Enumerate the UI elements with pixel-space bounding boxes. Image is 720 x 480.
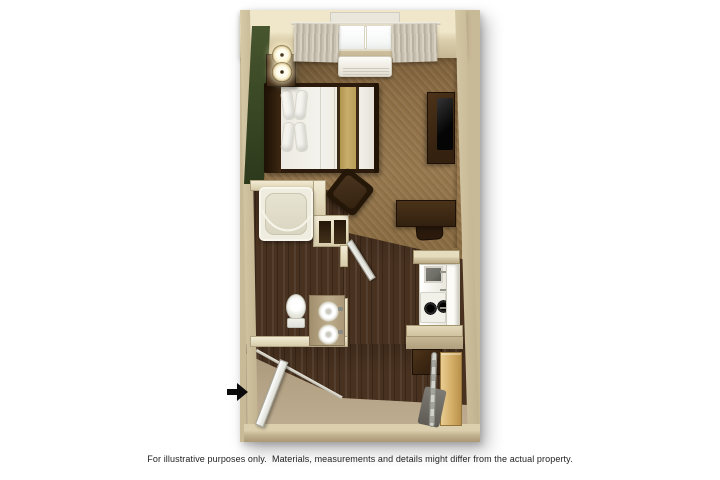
wall-bottom: [244, 424, 480, 442]
bed-runner: [340, 87, 356, 169]
bed-footboard: [374, 83, 379, 173]
faucet: [338, 307, 343, 311]
sink-basin: [318, 324, 339, 345]
desk: [396, 200, 456, 227]
bathroom-wall-divider: [313, 180, 326, 218]
television: [437, 98, 453, 150]
kitchen-counter-top: [413, 250, 460, 264]
curtain-left: [294, 23, 340, 62]
armchair-cushion: [332, 174, 368, 210]
toilet-tank: [287, 318, 305, 328]
base-cabinet: [412, 349, 442, 375]
sheet-crease: [320, 87, 321, 169]
entry-arrow-icon: [225, 380, 249, 404]
ac-unit: [338, 56, 392, 77]
fridge-handle: [440, 271, 446, 273]
ac-vents: [343, 68, 389, 75]
bed-sheet-end: [359, 87, 374, 169]
shower-curtain-rod: [259, 206, 313, 242]
closet-shelf-unit: [313, 215, 349, 247]
toilet-bowl: [286, 294, 306, 320]
table-lamp: [272, 62, 292, 82]
faucet: [338, 330, 343, 334]
closet-opening: [334, 220, 346, 244]
window-mullion: [364, 26, 367, 49]
kitchen-sink: [424, 266, 443, 283]
vanity-counter: [309, 295, 345, 346]
tv-dresser: [427, 92, 455, 164]
bed-headboard: [264, 83, 281, 173]
disclaimer-caption: For illustrative purposes only. Material…: [0, 454, 720, 465]
window-glass: [337, 24, 393, 51]
floor-plan-page: For illustrative purposes only. Material…: [0, 0, 720, 480]
kitchen-counter-lower-top: [406, 325, 463, 337]
bathroom-wall-right-upper: [340, 245, 348, 267]
fridge-handle: [440, 289, 446, 291]
curtain-right: [392, 23, 438, 62]
closet-opening: [319, 221, 331, 243]
fridge-handle: [440, 307, 446, 309]
sheet-crease: [334, 87, 335, 169]
kitchen-counter-lower-front: [406, 337, 463, 349]
stove-burner: [424, 302, 437, 315]
sink-basin: [318, 301, 339, 322]
bed: [264, 83, 379, 173]
